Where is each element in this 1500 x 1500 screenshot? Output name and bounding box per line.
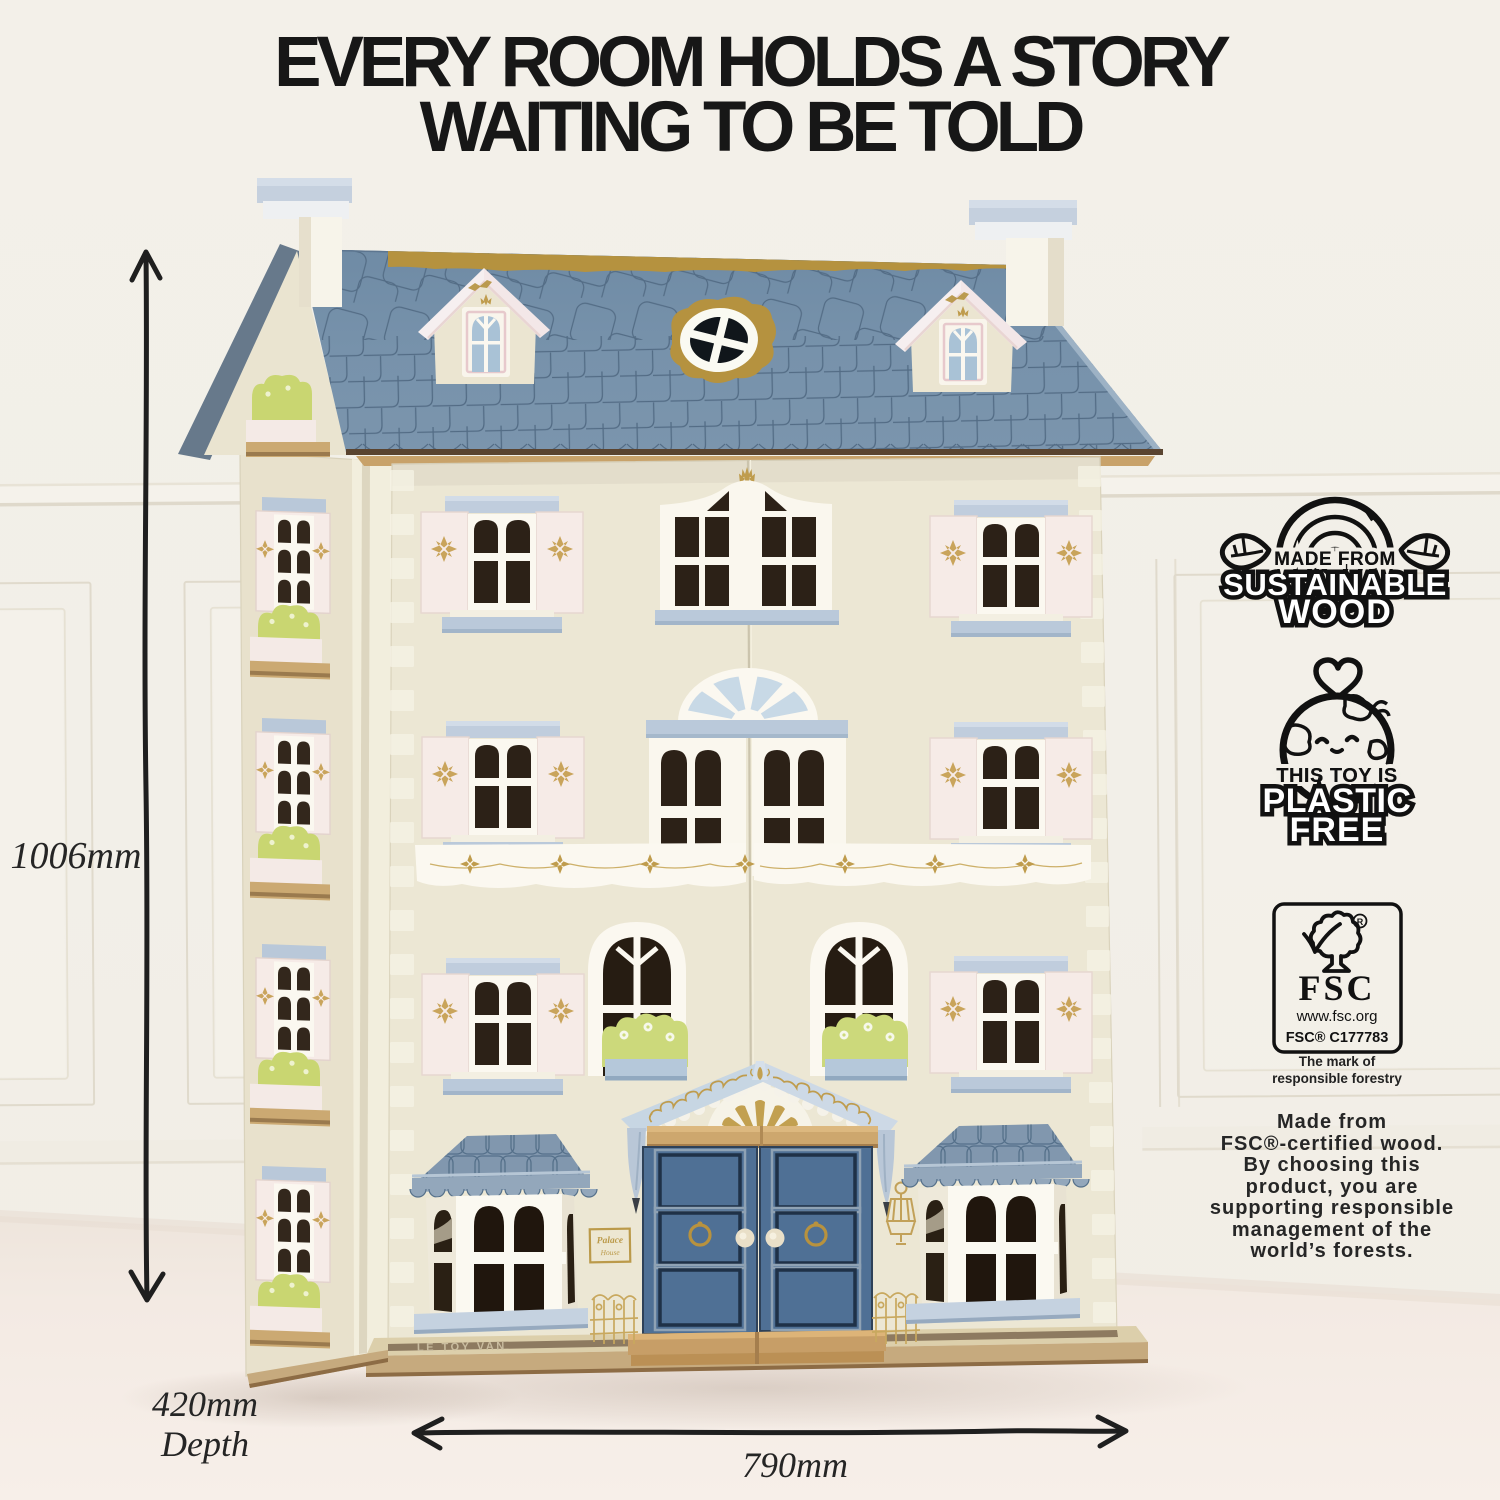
svg-text:The mark of: The mark of bbox=[1299, 1054, 1376, 1069]
svg-text:FSC: FSC bbox=[1298, 968, 1375, 1008]
svg-text:Palace: Palace bbox=[597, 1236, 624, 1246]
svg-text:responsible forestry: responsible forestry bbox=[1272, 1071, 1402, 1086]
svg-text:FREE: FREE bbox=[1290, 811, 1385, 849]
svg-text:LE TOY VAN: LE TOY VAN bbox=[417, 1340, 507, 1354]
svg-text:WOOD: WOOD bbox=[1278, 593, 1392, 631]
svg-text:House: House bbox=[599, 1248, 620, 1257]
svg-text:www.fsc.org: www.fsc.org bbox=[1296, 1008, 1378, 1025]
svg-text:FSC® C177783: FSC® C177783 bbox=[1286, 1030, 1389, 1046]
